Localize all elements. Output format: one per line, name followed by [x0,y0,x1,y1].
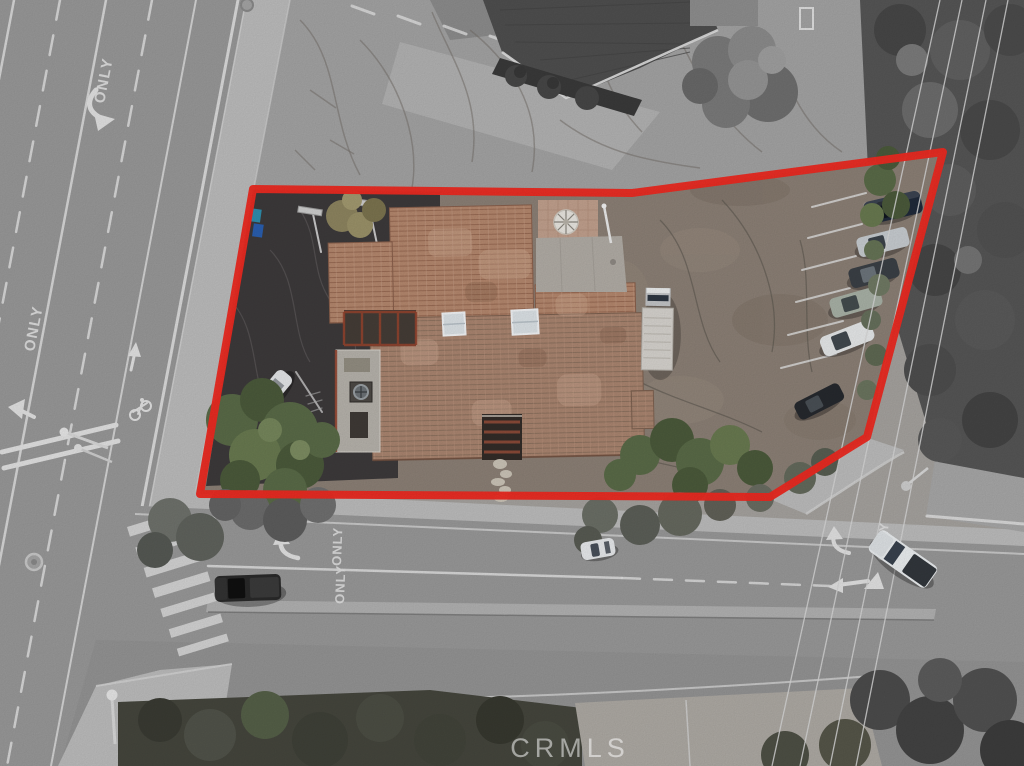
photo-grain [0,0,1024,766]
aerial-scene-svg: ONLY ONLY [0,0,1024,766]
mls-watermark: CRMLS [510,733,630,763]
aerial-photo-stage: ONLY ONLY [0,0,1024,766]
